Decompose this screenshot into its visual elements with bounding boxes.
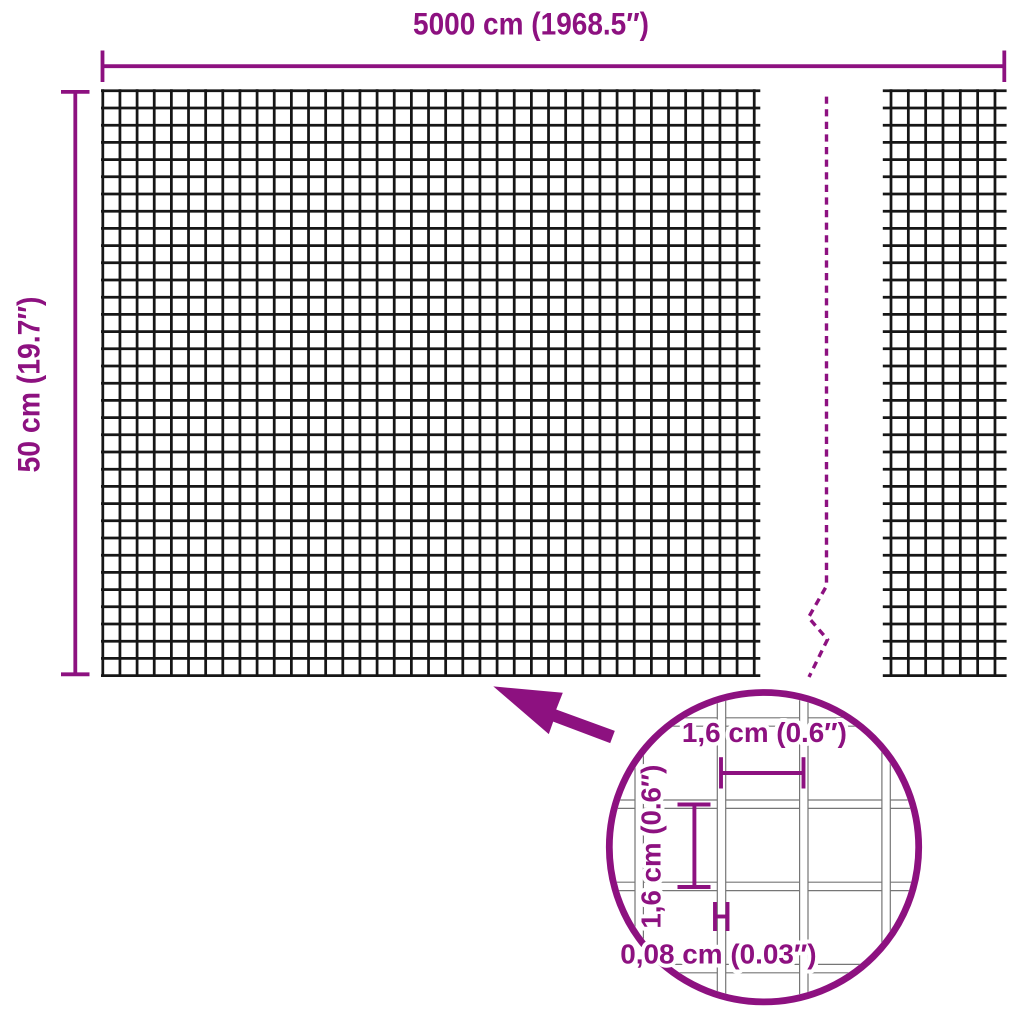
svg-text:1,6 cm (0.6″): 1,6 cm (0.6″) [636, 765, 667, 929]
svg-text:1,6 cm (0.6″): 1,6 cm (0.6″) [682, 717, 847, 748]
svg-text:50 cm (19.7″): 50 cm (19.7″) [11, 297, 47, 473]
svg-text:5000 cm (1968.5″): 5000 cm (1968.5″) [413, 5, 649, 41]
svg-text:0,08 cm (0.03″): 0,08 cm (0.03″) [620, 938, 816, 969]
